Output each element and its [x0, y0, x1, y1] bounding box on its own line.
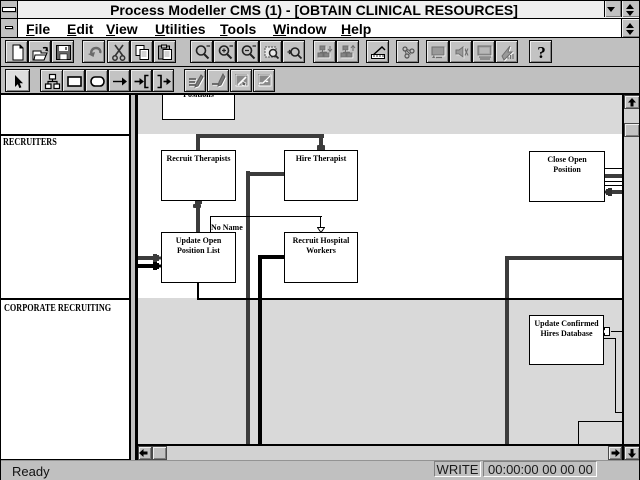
svg-text:?: ?	[537, 43, 546, 62]
